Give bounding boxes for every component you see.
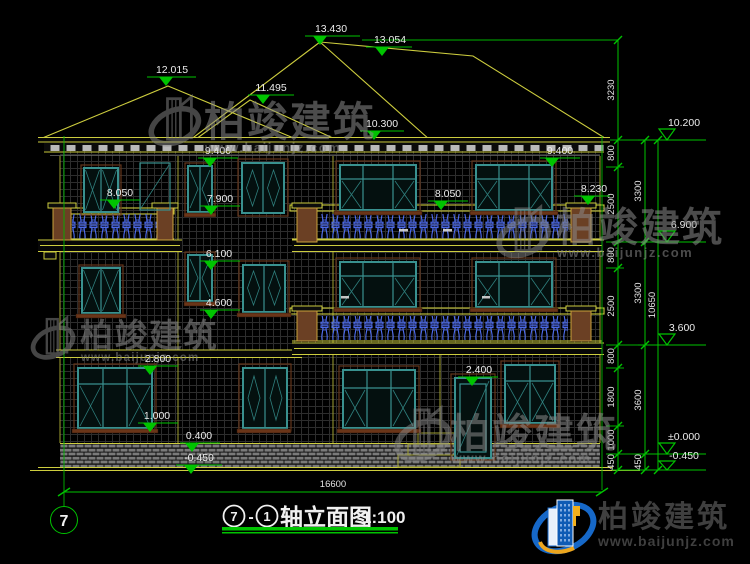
- watermark-site: www.baijunjz.com: [556, 245, 693, 260]
- brand-logo-site: www.baijunjz.com: [597, 533, 735, 549]
- title-separator: -: [248, 509, 253, 526]
- dim-label: 2500: [606, 295, 617, 316]
- dim-label: 3300: [633, 282, 644, 303]
- elevation-value: 8.230: [581, 183, 607, 195]
- title-scale: 1:100: [362, 508, 405, 527]
- elevation-value: 13.430: [315, 23, 347, 35]
- elevation-value: 6.100: [206, 248, 232, 260]
- elevation-value: 11.495: [255, 82, 286, 94]
- watermark: 柏竣建筑 www.baijunjz.com: [28, 317, 218, 364]
- window: [76, 265, 126, 318]
- title-underline: [222, 527, 398, 531]
- window: [238, 159, 288, 216]
- watermark-site: www.baijunjz.com: [204, 140, 341, 155]
- elevation-value: 8.050: [435, 188, 461, 200]
- elevation-value: 1.000: [144, 410, 170, 422]
- elevation-value: -0.450: [184, 452, 214, 464]
- elevation-svg: 3230 800 2500 800 2500 800 1800 1000 450…: [0, 0, 750, 564]
- watermark-brand: 柏竣建筑: [556, 206, 724, 250]
- window: [237, 364, 291, 433]
- watermark-brand: 柏竣建筑: [450, 412, 618, 456]
- elevation-value: 13.054: [374, 34, 406, 46]
- dim-label: 1800: [606, 386, 617, 407]
- title-axis-end: 1: [263, 509, 270, 524]
- window: [470, 258, 558, 312]
- axis-number: 7: [60, 513, 69, 530]
- dim-label: 3600: [633, 389, 644, 410]
- level-value: 10.200: [668, 117, 700, 129]
- dim-label: 450: [606, 454, 617, 470]
- brand-logo-text: 柏竣建筑: [598, 500, 730, 534]
- elevation-value: 0.400: [186, 430, 212, 442]
- dim-label: 450: [633, 454, 644, 470]
- watermark: 柏竣建筑 www.baijunjz.com: [494, 206, 724, 262]
- window: [337, 366, 421, 433]
- level-value: -0.450: [669, 450, 699, 462]
- dim-label: 800: [606, 145, 617, 161]
- cad-elevation-drawing: 3230 800 2500 800 2500 800 1800 1000 450…: [0, 0, 750, 564]
- watermark-site: www.baijunjz.com: [80, 352, 199, 364]
- title-underline-2: [222, 532, 398, 534]
- level-value: ±0.000: [668, 431, 700, 443]
- elevation-value: 4.600: [206, 297, 232, 309]
- dim-label-total: 10650: [647, 292, 658, 318]
- window: [334, 161, 422, 215]
- watermark-site: www.baijunjz.com: [450, 451, 592, 466]
- elevation-value: 8.050: [107, 187, 133, 199]
- title-axis-start: 7: [230, 509, 237, 524]
- elevation-value: 12.015: [156, 64, 188, 76]
- dim-label: 800: [606, 348, 617, 364]
- window: [237, 261, 291, 317]
- balcony-corbel: [44, 252, 56, 259]
- watermark-brand: 柏竣建筑: [204, 99, 376, 145]
- elevation-value: 2.400: [466, 364, 492, 376]
- dim-label: 3300: [633, 180, 644, 201]
- elevation-value: 7.900: [207, 193, 233, 205]
- overall-width-label: 16600: [320, 479, 346, 490]
- drawing-title: 7 - 1 轴立面图 1:100: [222, 504, 405, 534]
- watermark-brand: 柏竣建筑: [80, 317, 218, 354]
- window: [334, 258, 422, 312]
- level-value: 3.600: [669, 322, 695, 334]
- title-name: 轴立面图: [280, 504, 372, 530]
- elevation-value: 9.400: [547, 145, 573, 157]
- window: [470, 161, 558, 215]
- dim-label: 3230: [606, 79, 617, 100]
